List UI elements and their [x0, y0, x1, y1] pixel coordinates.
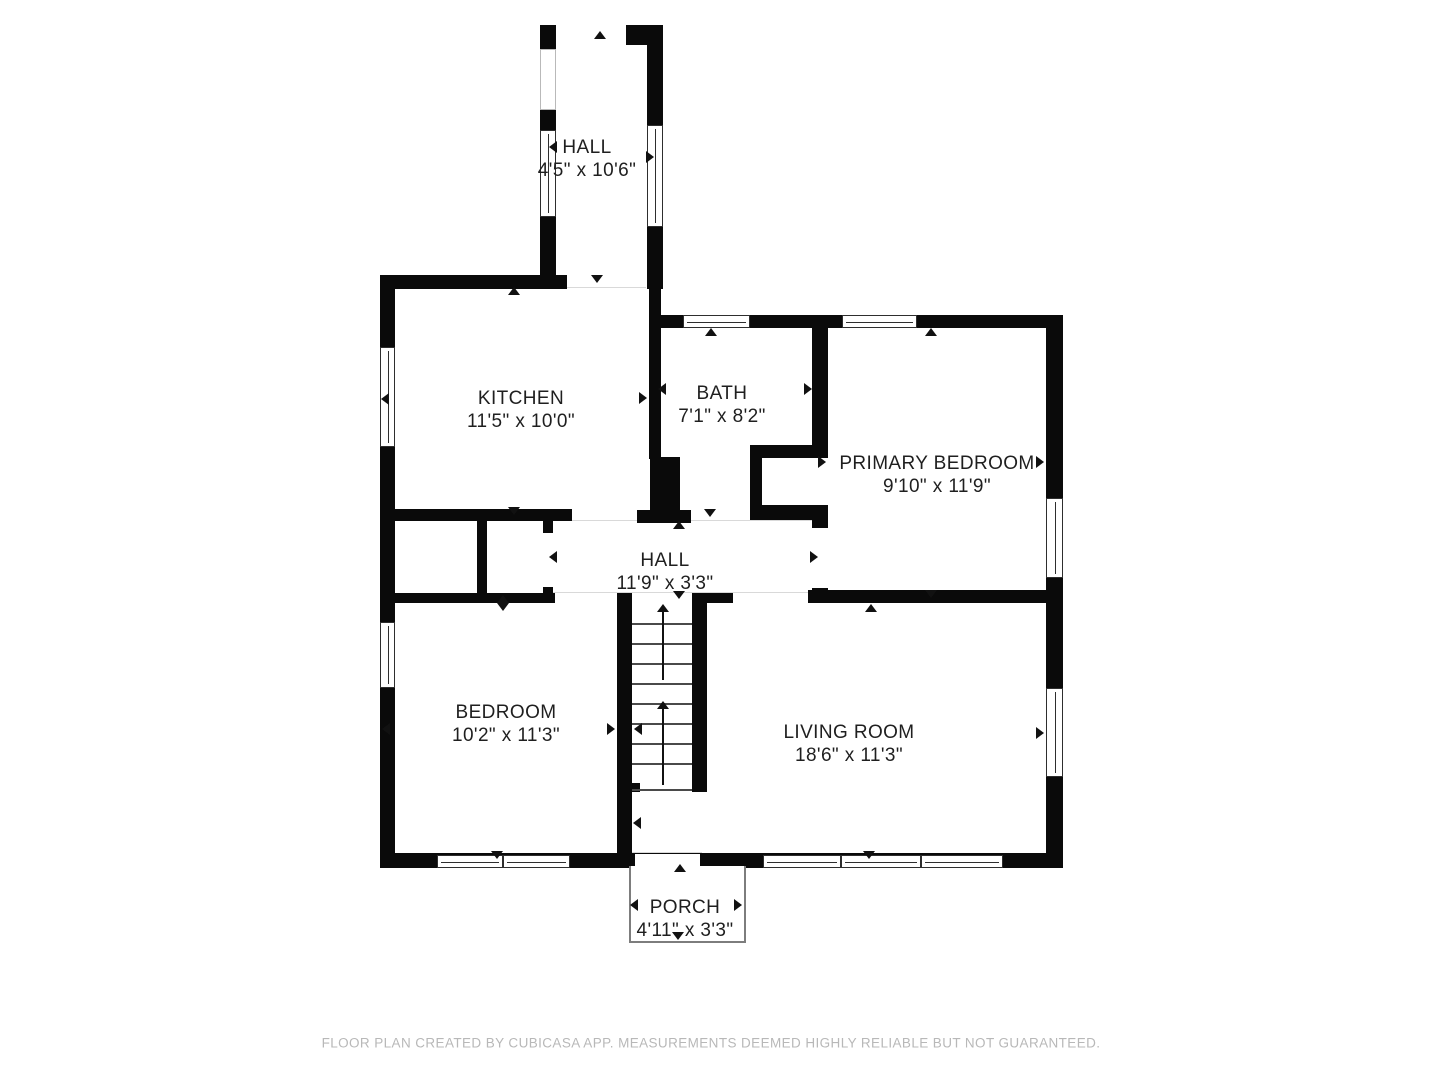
dimension-arrow [549, 551, 557, 563]
wall [626, 25, 647, 45]
floor-plan: HALL 4'5" x 10'6" KITCHEN 11'5" x 10'0" … [0, 0, 1440, 1080]
stair-tread [632, 789, 692, 791]
room-name: PRIMARY BEDROOM [839, 452, 1034, 475]
room-label-bedroom: BEDROOM 10'2" x 11'3" [452, 701, 560, 747]
dimension-arrow [381, 393, 389, 405]
wall [692, 593, 707, 792]
dimension-arrow [634, 723, 642, 735]
room-label-primary-bedroom: PRIMARY BEDROOM 9'10" x 11'9" [839, 452, 1034, 498]
room-name: HALL [616, 549, 713, 572]
dimension-arrow [382, 723, 390, 735]
window [683, 315, 750, 328]
dimension-arrow [925, 590, 937, 598]
dimension-arrow [704, 509, 716, 517]
wall [750, 458, 762, 505]
dimension-arrow [658, 383, 666, 395]
dimension-arrow [508, 287, 520, 295]
dimension-arrow [508, 507, 520, 515]
dimension-arrow [810, 551, 818, 563]
dimension-arrow [633, 817, 641, 829]
dimension-arrow [804, 383, 812, 395]
window-axis-line [687, 322, 746, 323]
window [921, 855, 1003, 868]
window-axis-line [388, 626, 389, 684]
dimension-arrow [591, 275, 603, 283]
window [380, 622, 395, 688]
dimension-arrow [607, 723, 615, 735]
room-name: LIVING ROOM [783, 721, 914, 744]
window [841, 855, 921, 868]
room-dimensions: 7'1" x 8'2" [678, 405, 765, 428]
window-axis-line [655, 129, 656, 223]
wall [812, 328, 828, 447]
dimension-arrow [863, 851, 875, 859]
room-label-hall: HALL 11'9" x 3'3" [616, 549, 713, 595]
room-dimensions: 9'10" x 11'9" [839, 475, 1034, 498]
footer-disclaimer: FLOOR PLAN CREATED BY CUBICASA APP. MEAS… [322, 1036, 1101, 1051]
room-dimensions: 10'2" x 11'3" [452, 724, 560, 747]
room-label-porch: PORCH 4'11" x 3'3" [636, 896, 733, 942]
window [1046, 688, 1063, 777]
wall [477, 520, 487, 595]
dimension-arrow [639, 392, 647, 404]
window [1046, 498, 1063, 578]
wall [617, 593, 632, 868]
window [503, 855, 570, 868]
dimension-arrow [734, 899, 742, 911]
window-axis-line [1055, 692, 1056, 773]
window [540, 49, 556, 110]
room-label-bath: BATH 7'1" x 8'2" [678, 382, 765, 428]
wall [380, 593, 555, 603]
room-dimensions: 11'5" x 10'0" [467, 410, 575, 433]
room-name: KITCHEN [467, 387, 575, 410]
window-axis-line [767, 862, 837, 863]
dimension-arrow [594, 31, 606, 39]
window-axis-line [846, 322, 913, 323]
room-name: BEDROOM [452, 701, 560, 724]
room-boundary-line [557, 287, 646, 288]
room-dimensions: 18'6" x 11'3" [783, 744, 914, 767]
wall [543, 520, 553, 533]
stair-tread [632, 683, 692, 685]
room-dimensions: 4'11" x 3'3" [636, 919, 733, 942]
window-axis-line [1055, 502, 1056, 574]
window [842, 315, 917, 328]
window-axis-line [925, 862, 999, 863]
room-label-living-room: LIVING ROOM 18'6" x 11'3" [783, 721, 914, 767]
room-label-kitchen: KITCHEN 11'5" x 10'0" [467, 387, 575, 433]
dimension-arrow [818, 456, 826, 468]
window-axis-line [845, 862, 917, 863]
dimension-arrow [497, 603, 509, 611]
dimension-arrow [865, 604, 877, 612]
dimension-arrow [1036, 727, 1044, 739]
window [647, 125, 663, 227]
dimension-arrow [646, 151, 654, 163]
stairs-direction-line [662, 709, 664, 785]
window [763, 855, 841, 868]
dimension-arrow [673, 521, 685, 529]
wall [380, 275, 567, 289]
dimension-arrow [674, 864, 686, 872]
room-dimensions: 11'9" x 3'3" [616, 572, 713, 595]
dimension-arrow [1036, 456, 1044, 468]
stairs-direction-arrow [657, 604, 669, 612]
room-name: BATH [678, 382, 765, 405]
wall [650, 457, 680, 512]
wall [812, 505, 828, 528]
dimension-arrow [497, 595, 509, 603]
room-dimensions: 4'5" x 10'6" [538, 159, 636, 182]
room-name: PORCH [636, 896, 733, 919]
room-label-entry-hall: HALL 4'5" x 10'6" [538, 136, 636, 182]
dimension-arrow [491, 851, 503, 859]
room-name: HALL [538, 136, 636, 159]
dimension-arrow [925, 328, 937, 336]
dimension-arrow [705, 328, 717, 336]
stairs-direction-line [662, 612, 664, 680]
window-axis-line [507, 862, 566, 863]
stairs-direction-arrow [657, 701, 669, 709]
window-axis-line [441, 862, 499, 863]
